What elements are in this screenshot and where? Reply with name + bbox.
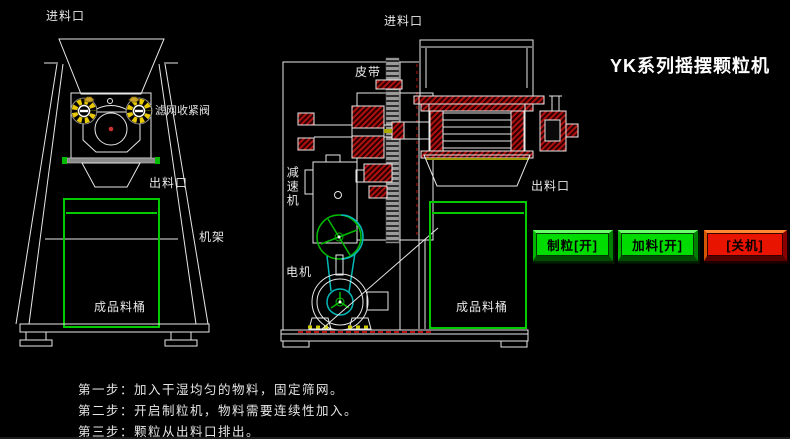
side-inlet-label: 进料口 <box>384 15 423 28</box>
shutdown-button[interactable]: [关机] <box>704 230 787 261</box>
front-outlet-funnel <box>82 163 140 187</box>
side-hopper <box>420 40 533 96</box>
shutdown-button-label: [关机] <box>707 233 783 256</box>
side-bearing-right <box>540 96 578 151</box>
hmi-screen: 进料口 滤网收紧阀 出料口 机架 成品料桶 进料口 皮带 减速机 电机 出料口 … <box>0 0 790 439</box>
side-belt-label: 皮带 <box>355 66 381 79</box>
feed-on-button-label: 加料[开] <box>621 233 694 256</box>
valve-knob-right <box>126 98 152 124</box>
side-motor-label: 电机 <box>286 266 312 279</box>
front-barrel-label: 成品料桶 <box>94 301 146 314</box>
valve-knob-left <box>71 98 97 124</box>
side-base <box>281 330 528 347</box>
side-barrel-label: 成品料桶 <box>456 301 508 314</box>
front-outlet-label: 出料口 <box>149 177 188 190</box>
instruction-step-2: 第二步：开启制粒机，物料需要连续性加入。 <box>78 400 358 419</box>
side-view <box>281 40 578 347</box>
feed-on-button[interactable]: 加料[开] <box>618 230 698 261</box>
front-screen-bar <box>67 158 156 163</box>
front-feet <box>20 332 197 346</box>
page-title: YK系列摇摆颗粒机 <box>610 52 770 78</box>
instruction-step-1: 第一步：加入干湿均匀的物料，固定筛网。 <box>78 379 344 398</box>
front-frame-label: 机架 <box>199 231 225 244</box>
motor <box>308 255 388 330</box>
side-drum-section <box>421 104 533 158</box>
side-outlet-label: 出料口 <box>531 180 570 193</box>
reducer-pulley <box>317 215 363 259</box>
side-reducer-label: 减速机 <box>285 166 298 208</box>
front-inlet-label: 进料口 <box>46 10 85 23</box>
reducer-box <box>305 155 357 243</box>
granulate-on-button[interactable]: 制粒[开] <box>533 230 613 261</box>
front-hopper <box>59 39 164 94</box>
granulate-on-button-label: 制粒[开] <box>536 233 609 256</box>
front-valve-label: 滤网收紧阀 <box>155 105 210 117</box>
